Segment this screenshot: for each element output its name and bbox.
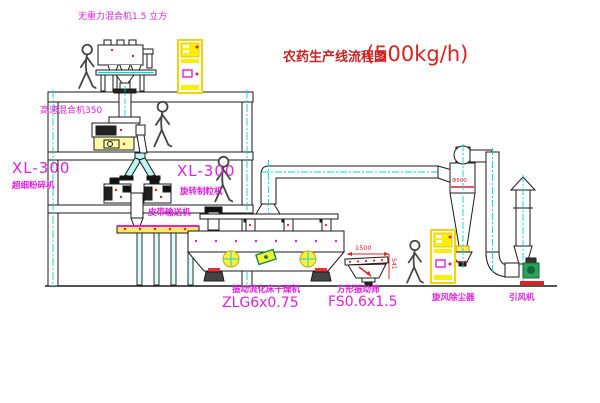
label-fan: 引风机 [509, 294, 535, 303]
label-xl300-left: XL-300 [12, 161, 70, 176]
label-high-speed-mixer: 高速混合机350 [40, 107, 102, 116]
control-cabinet-ground [431, 230, 455, 283]
dim-cyclone-diameter: Φ500 [452, 179, 467, 185]
fluid-bed-dryer [188, 207, 344, 281]
process-flow-diagram: 无重力混合机1.5 立方 高速混合机350 XL-300 超细粉碎机 XL-30… [0, 0, 600, 403]
person-ground [407, 241, 423, 283]
label-cyclone: 旋风除尘器 [432, 294, 475, 303]
exhaust-duct [256, 160, 452, 214]
label-granulator: 旋转制粒机 [180, 188, 223, 197]
label-pulverizer: 超细粉碎机 [12, 182, 55, 191]
dim-sieve-height: 541 [390, 258, 396, 269]
cyclone-to-fan-duct [470, 148, 519, 277]
label-belt-conveyor: 皮带输送机 [148, 209, 191, 218]
stack-and-fan [505, 175, 544, 285]
fan-unit [523, 263, 539, 278]
person-floor2 [154, 102, 171, 147]
granulator-left [104, 178, 131, 203]
label-sieve-model: FS0.6x1.5 [328, 295, 398, 309]
control-cabinet-roof [178, 40, 202, 93]
down-duct-roof [114, 86, 136, 120]
person-roof [79, 45, 95, 88]
diagram-capacity: (500kg/h) [366, 44, 468, 65]
gravity-free-mixer [96, 40, 156, 91]
belt-conveyor [117, 226, 199, 285]
label-dryer-model: ZLG6x0.75 [222, 296, 299, 310]
label-gravity-mixer: 无重力混合机1.5 立方 [78, 13, 167, 22]
discharge-chute [131, 193, 143, 226]
high-speed-mixer [92, 117, 147, 153]
label-xl300-right: XL-300 [177, 164, 235, 179]
label-dryer-name: 振动流化床干燥机 [232, 286, 300, 295]
vibrating-sieve [345, 252, 389, 285]
granulator-right [144, 178, 171, 203]
dim-sieve-width: 1500 [355, 245, 372, 252]
